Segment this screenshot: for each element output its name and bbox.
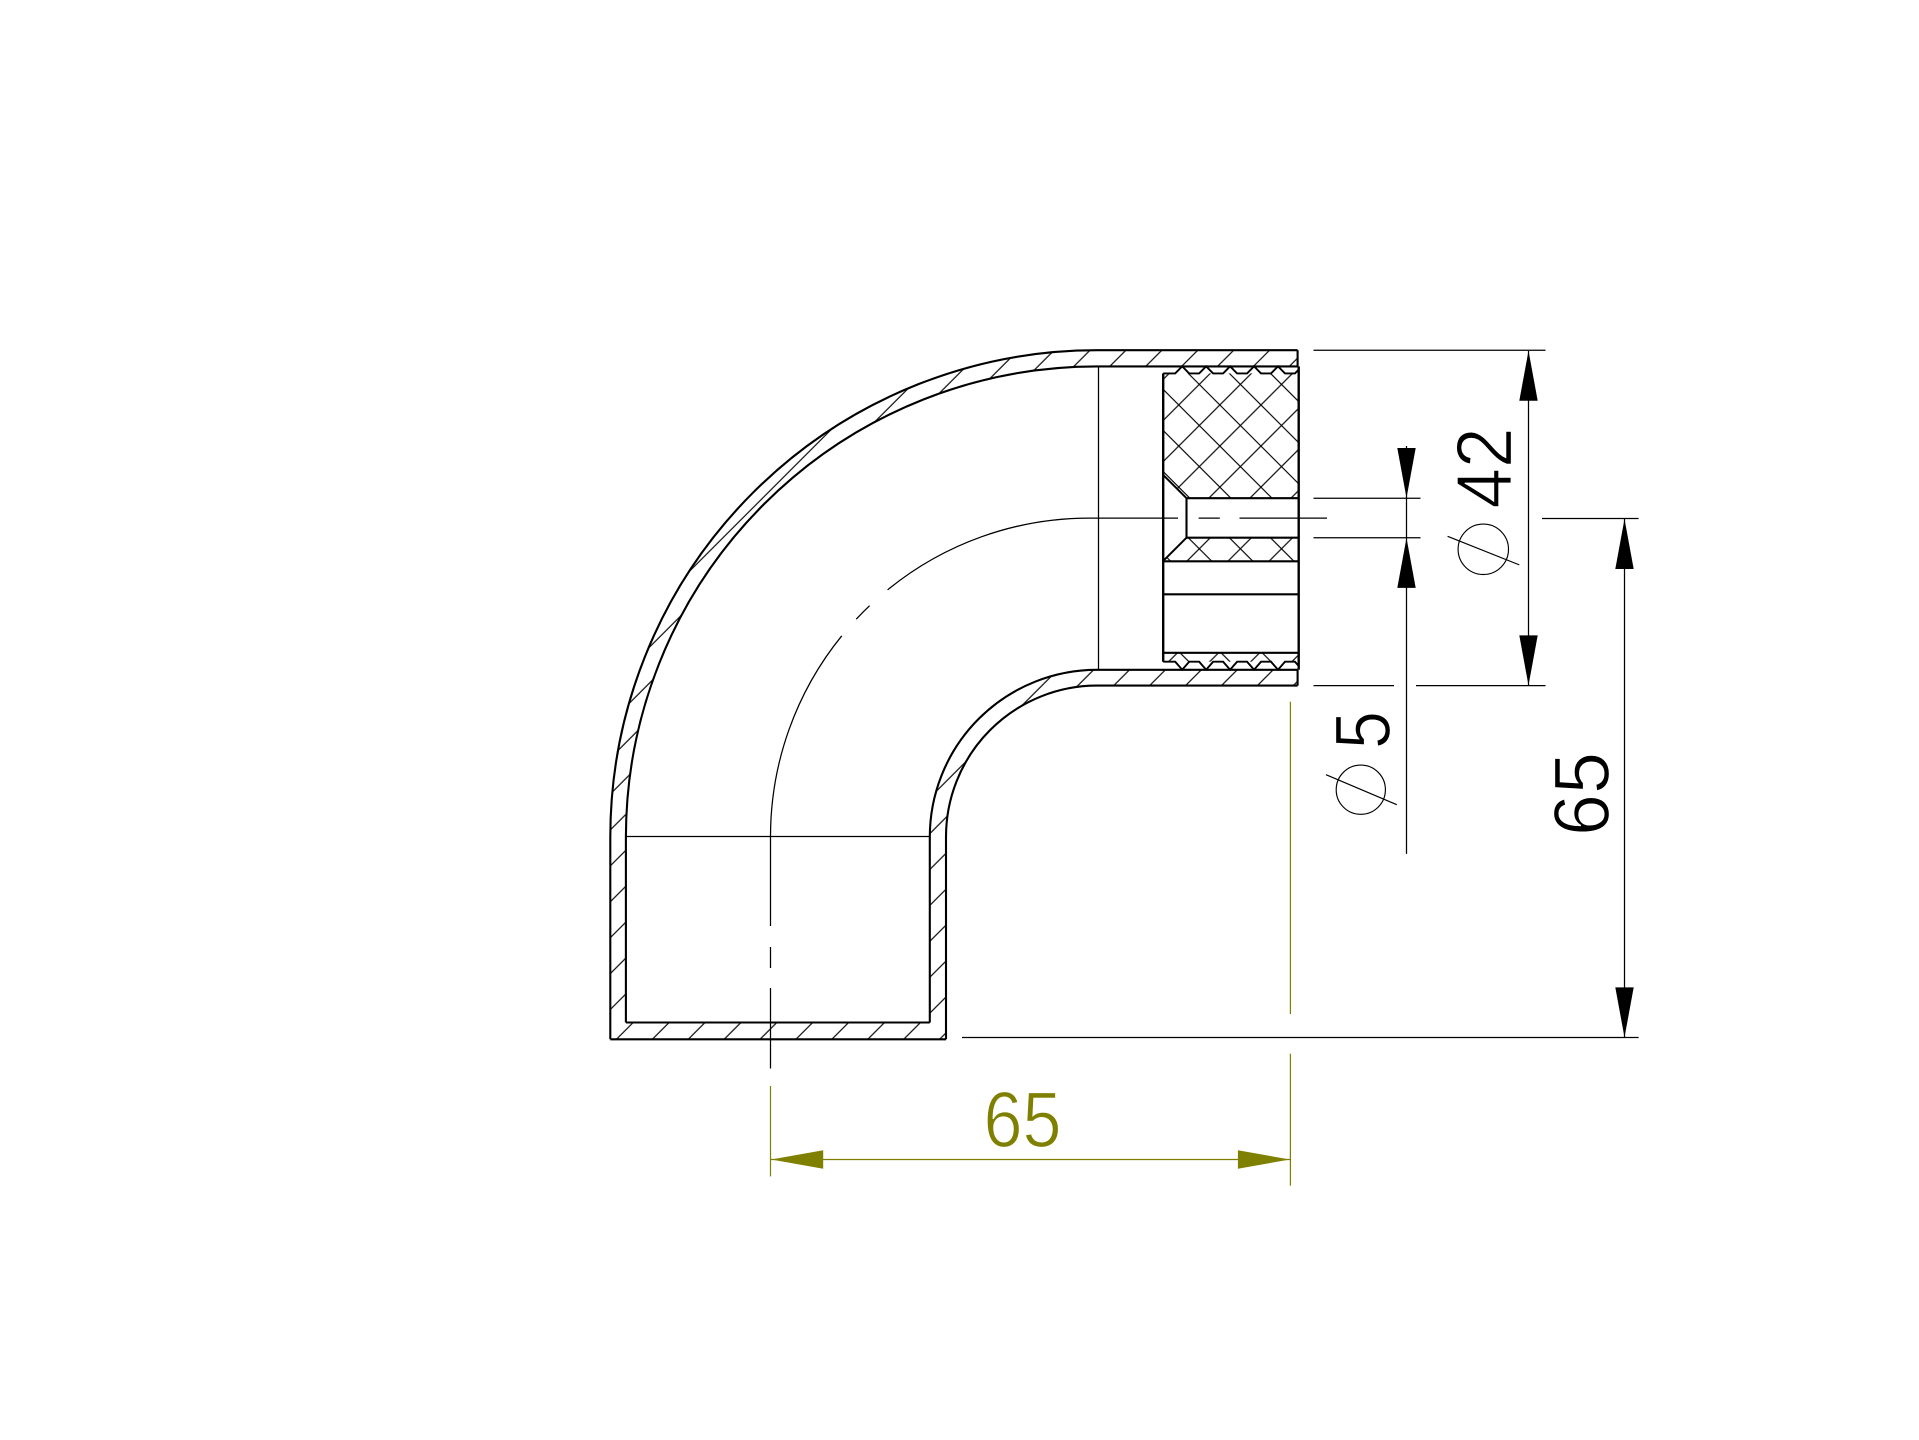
svg-text:5: 5 [1318,711,1407,749]
svg-text:65: 65 [984,1075,1062,1164]
svg-text:42: 42 [1440,428,1529,509]
svg-text:65: 65 [1537,752,1626,836]
